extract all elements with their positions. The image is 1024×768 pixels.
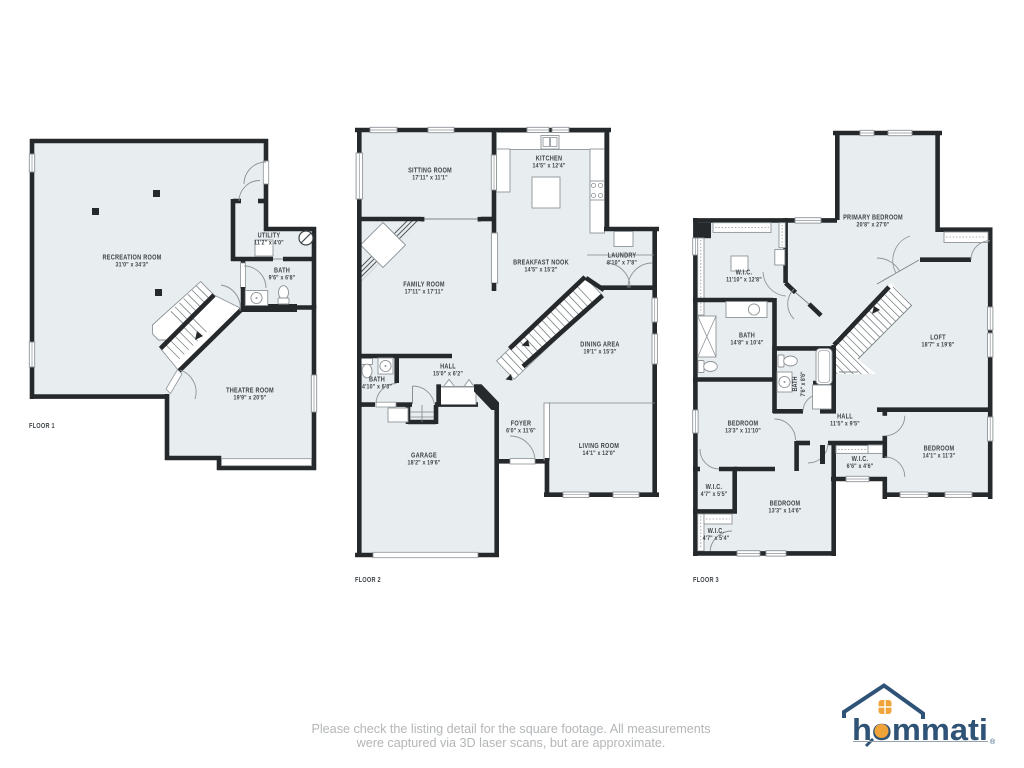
svg-text:were captured via 3D laser sca: were captured via 3D laser scans, but ar… (356, 736, 666, 750)
svg-text:11'10" x 12'8": 11'10" x 12'8" (726, 277, 762, 284)
svg-text:6'6" x 4'6": 6'6" x 4'6" (847, 464, 874, 471)
svg-text:FOYER: FOYER (511, 420, 532, 428)
svg-text:DINING AREA: DINING AREA (580, 341, 620, 349)
svg-text:4'10" x 6'3": 4'10" x 6'3" (362, 384, 392, 391)
svg-text:17'11" x 17'11": 17'11" x 17'11" (405, 289, 444, 296)
svg-text:W.I.C.: W.I.C. (706, 483, 723, 491)
svg-text:BEDROOM: BEDROOM (924, 445, 955, 453)
svg-text:18'2" x 19'6": 18'2" x 19'6" (407, 460, 440, 467)
svg-text:19'1" x 15'3": 19'1" x 15'3" (583, 349, 616, 356)
svg-text:W.I.C.: W.I.C. (852, 455, 869, 463)
svg-text:KITCHEN: KITCHEN (536, 155, 563, 163)
svg-text:14'5" x 15'2": 14'5" x 15'2" (524, 267, 557, 274)
svg-text:14'8" x 10'4": 14'8" x 10'4" (730, 340, 763, 347)
svg-text:BEDROOM: BEDROOM (770, 500, 801, 508)
svg-text:LIVING ROOM: LIVING ROOM (579, 442, 619, 450)
svg-text:14'5" x 12'4": 14'5" x 12'4" (532, 163, 565, 170)
svg-text:18'7" x 19'8": 18'7" x 19'8" (921, 342, 954, 349)
svg-text:BATH: BATH (369, 376, 385, 384)
svg-text:BATH: BATH (739, 332, 755, 340)
svg-text:HALL: HALL (837, 413, 853, 421)
svg-text:19'9" x 20'5": 19'9" x 20'5" (233, 395, 266, 402)
svg-text:17'11" x 11'1": 17'11" x 11'1" (412, 175, 448, 182)
svg-text:FLOOR 1: FLOOR 1 (29, 422, 55, 430)
svg-text:20'8" x 27'0": 20'8" x 27'0" (856, 222, 889, 229)
svg-text:9'6" x 6'8": 9'6" x 6'8" (269, 275, 296, 282)
svg-text:11'2" x 4'0": 11'2" x 4'0" (254, 240, 284, 247)
svg-text:UTILITY: UTILITY (258, 232, 281, 240)
svg-text:BATH: BATH (791, 376, 799, 391)
svg-text:7'6" x 8'6": 7'6" x 8'6" (801, 371, 808, 396)
svg-text:13'3" x 11'10": 13'3" x 11'10" (725, 428, 761, 435)
svg-text:GARAGE: GARAGE (411, 452, 437, 460)
svg-text:8'10" x 7'8": 8'10" x 7'8" (607, 260, 637, 267)
svg-text:31'0" x 34'3": 31'0" x 34'3" (115, 262, 148, 269)
svg-text:PRIMARY BEDROOM: PRIMARY BEDROOM (843, 214, 903, 222)
svg-text:14'1" x 12'0": 14'1" x 12'0" (582, 451, 615, 458)
svg-text:14'1" x 11'3": 14'1" x 11'3" (923, 453, 956, 460)
svg-text:BREAKFAST NOOK: BREAKFAST NOOK (513, 259, 569, 267)
svg-text:HALL: HALL (440, 363, 456, 371)
svg-text:4'7" x 5'5": 4'7" x 5'5" (701, 492, 728, 499)
svg-text:13'3" x 14'6": 13'3" x 14'6" (768, 508, 801, 515)
svg-text:THEATRE ROOM: THEATRE ROOM (226, 387, 274, 395)
svg-text:W.I.C.: W.I.C. (708, 527, 725, 535)
svg-text:RECREATION ROOM: RECREATION ROOM (102, 254, 161, 262)
svg-text:FLOOR 2: FLOOR 2 (355, 576, 381, 584)
svg-text:4'7" x 5'4": 4'7" x 5'4" (703, 536, 730, 543)
svg-text:15'0" x 6'2": 15'0" x 6'2" (433, 371, 463, 378)
svg-text:LAUNDRY: LAUNDRY (608, 252, 637, 260)
svg-text:®: ® (990, 738, 996, 746)
svg-text:W.I.C.: W.I.C. (736, 269, 753, 277)
svg-text:SITTING ROOM: SITTING ROOM (408, 167, 452, 175)
svg-text:FLOOR 3: FLOOR 3 (693, 576, 719, 584)
svg-text:FAMILY ROOM: FAMILY ROOM (403, 281, 444, 289)
svg-text:BATH: BATH (274, 267, 290, 275)
svg-text:11'5" x 9'5": 11'5" x 9'5" (830, 421, 860, 428)
svg-text:Please check the listing detai: Please check the listing detail for the … (311, 722, 710, 736)
svg-text:BEDROOM: BEDROOM (728, 420, 759, 428)
svg-text:LOFT: LOFT (930, 334, 946, 342)
svg-text:6'0" x 11'6": 6'0" x 11'6" (506, 428, 536, 435)
